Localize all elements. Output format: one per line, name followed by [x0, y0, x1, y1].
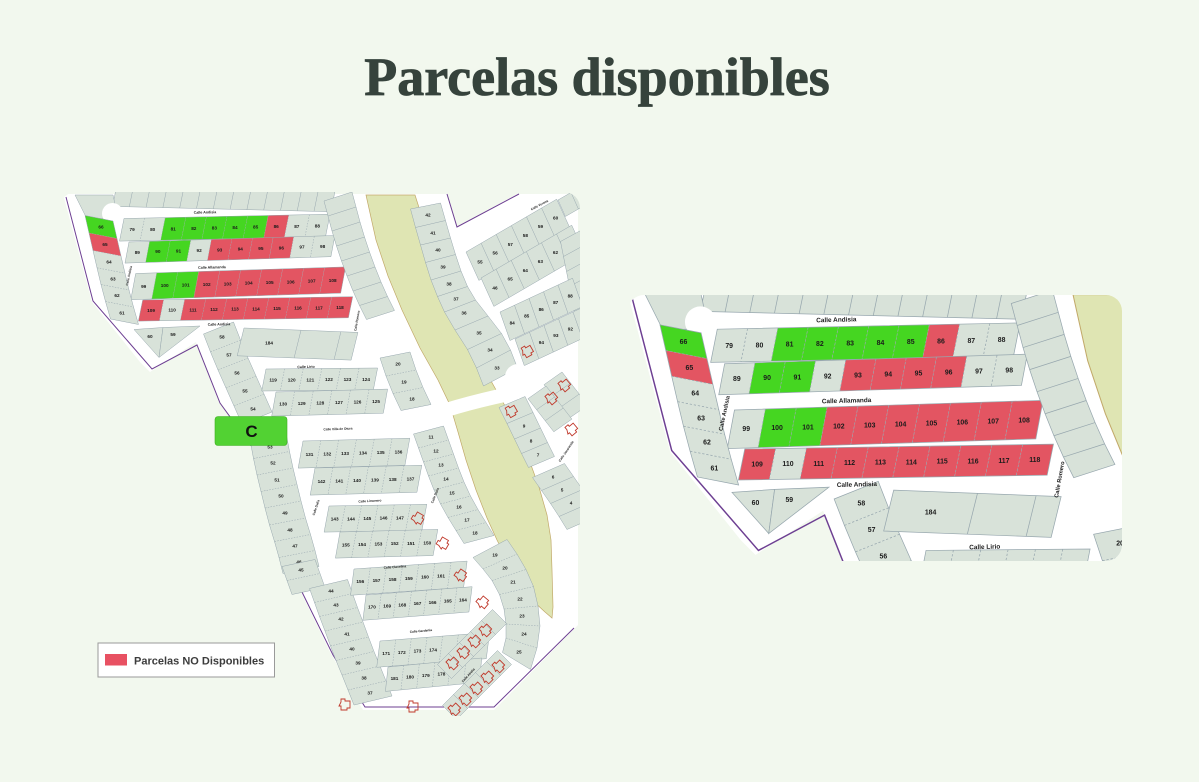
svg-text:Calle Andisia: Calle Andisia: [208, 322, 232, 327]
svg-text:Calle Allamanda: Calle Allamanda: [198, 265, 227, 270]
svg-text:C: C: [245, 422, 257, 441]
svg-text:Calle Andisia: Calle Andisia: [837, 481, 878, 489]
svg-text:Calle Allamanda: Calle Allamanda: [822, 397, 872, 405]
svg-text:Calle Andisia: Calle Andisia: [816, 316, 857, 324]
svg-text:Parcelas disponibles: Parcelas disponibles: [364, 47, 830, 107]
svg-text:Calle Andisia: Calle Andisia: [194, 210, 218, 215]
svg-text:Calle Lirio: Calle Lirio: [969, 544, 1000, 552]
svg-text:Parcelas NO Disponibles: Parcelas NO Disponibles: [134, 656, 264, 668]
svg-text:Calle Lirio: Calle Lirio: [297, 365, 315, 369]
